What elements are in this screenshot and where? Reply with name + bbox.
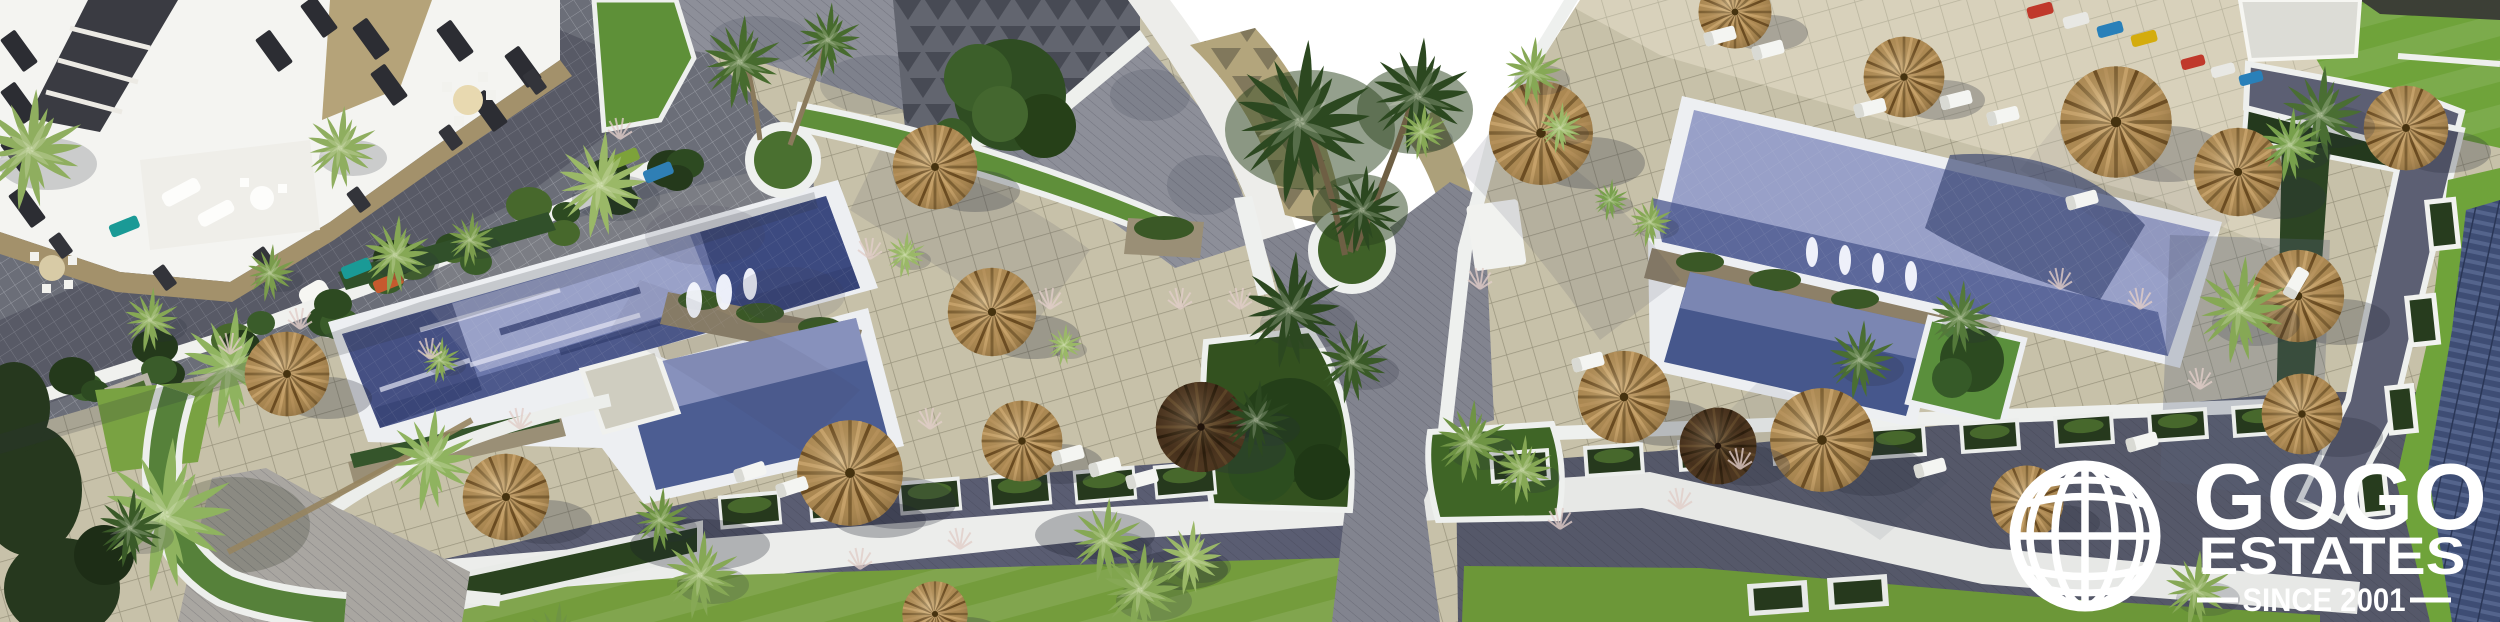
svg-text:SINCE 2001: SINCE 2001	[2243, 582, 2406, 618]
svg-text:ESTATES: ESTATES	[2199, 527, 2466, 586]
